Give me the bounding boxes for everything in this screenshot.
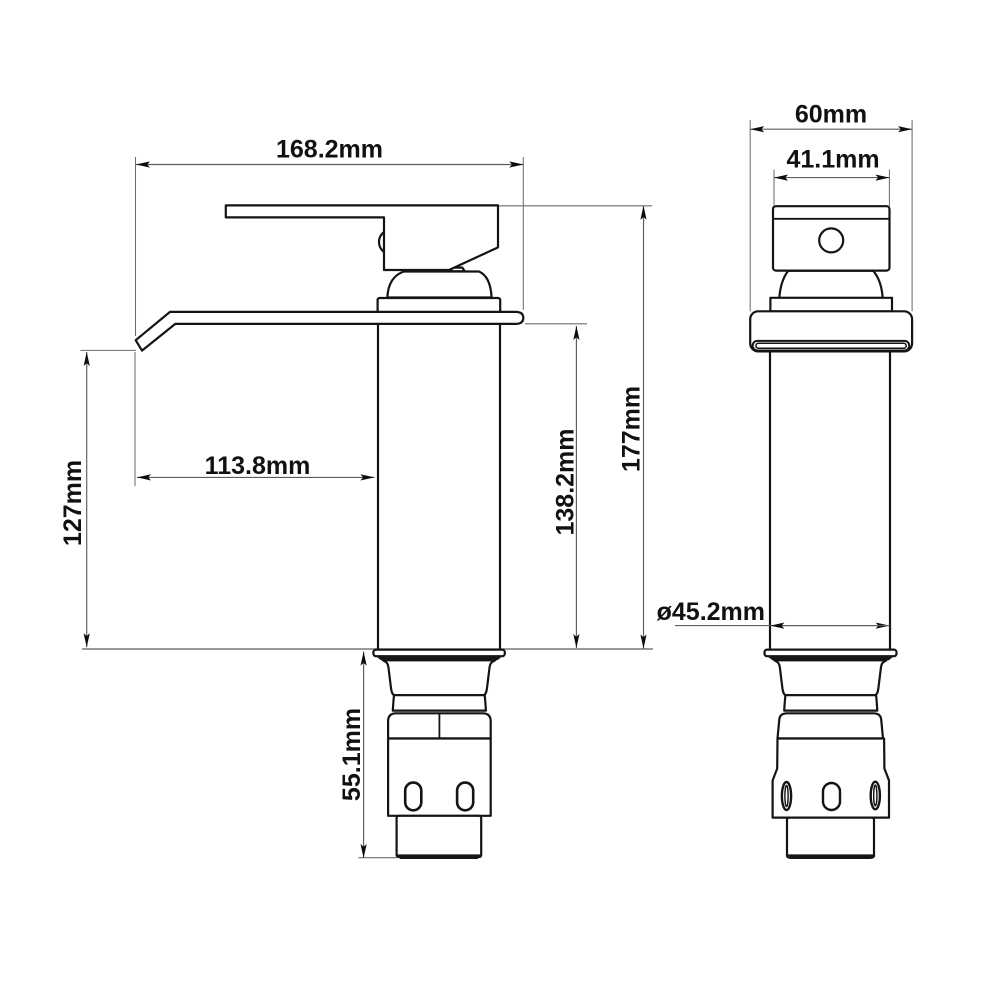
svg-text:138.2mm: 138.2mm xyxy=(552,428,580,535)
svg-text:168.2mm: 168.2mm xyxy=(276,136,383,164)
svg-text:41.1mm: 41.1mm xyxy=(786,146,879,174)
svg-text:ø45.2mm: ø45.2mm xyxy=(657,598,765,626)
svg-text:60mm: 60mm xyxy=(795,101,867,129)
svg-text:127mm: 127mm xyxy=(59,460,87,546)
svg-text:113.8mm: 113.8mm xyxy=(205,452,311,480)
svg-text:55.1mm: 55.1mm xyxy=(338,708,366,801)
svg-text:177mm: 177mm xyxy=(618,386,646,472)
